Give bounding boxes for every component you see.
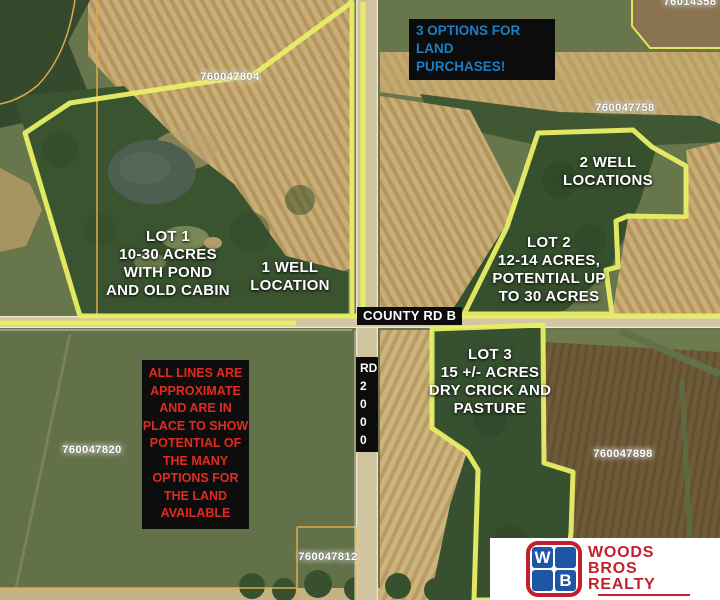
woods-bros-realty-logo: W B WOODS BROS REALTY	[490, 538, 720, 600]
aerial-basemap	[0, 0, 720, 600]
parcel-number-clipped-top: 76014358	[664, 0, 717, 8]
road-edge	[356, 0, 357, 600]
lot3-label: LOT 3 15 +/- ACRES DRY CRICK AND PASTURE	[429, 346, 552, 418]
pond-highlight	[119, 152, 171, 184]
tree-canopy	[239, 573, 265, 599]
brand-name: WOODS BROS REALTY	[588, 545, 656, 592]
brand-underline	[598, 594, 690, 596]
county-rd-b-label: COUNTY RD B	[357, 307, 462, 325]
logo-tile-b: B	[555, 570, 576, 591]
tree-canopy	[285, 185, 315, 215]
listing-map: 3 OPTIONS FOR LAND PURCHASES! 760047804 …	[0, 0, 720, 600]
well1-label: 1 WELL LOCATION	[250, 259, 330, 295]
tree-canopy	[385, 573, 411, 599]
parcel-number-760047898: 760047898	[593, 448, 653, 460]
lot1-label: LOT 1 10-30 ACRES WITH POND AND OLD CABI…	[106, 228, 230, 300]
parcel-number-760047758: 760047758	[595, 102, 655, 114]
road-rd-2000	[356, 0, 378, 600]
disclaimer-text: ALL LINES ARE APPROXIMATE AND ARE IN PLA…	[142, 360, 249, 529]
tree-canopy	[42, 132, 78, 168]
parcel-number-760047820: 760047820	[62, 444, 122, 456]
well2-label: 2 WELL LOCATIONS	[563, 154, 653, 190]
promo-banner: 3 OPTIONS FOR LAND PURCHASES!	[409, 19, 555, 80]
lot2-label: LOT 2 12-14 ACRES, POTENTIAL UP TO 30 AC…	[492, 234, 605, 306]
logo-tile-w: W	[532, 547, 553, 568]
road-edge	[0, 327, 720, 328]
wb-emblem: W B	[526, 541, 582, 597]
tree-icon	[532, 570, 553, 591]
rd-2000-label: RD 2 0 0 0	[356, 357, 378, 452]
tree-canopy	[304, 570, 332, 598]
tree-canopy	[230, 212, 270, 252]
road-edge	[377, 0, 378, 600]
house-icon	[555, 547, 576, 568]
parcel-number-760047804: 760047804	[200, 71, 260, 83]
parcel-number-760047812: 760047812	[298, 551, 358, 563]
